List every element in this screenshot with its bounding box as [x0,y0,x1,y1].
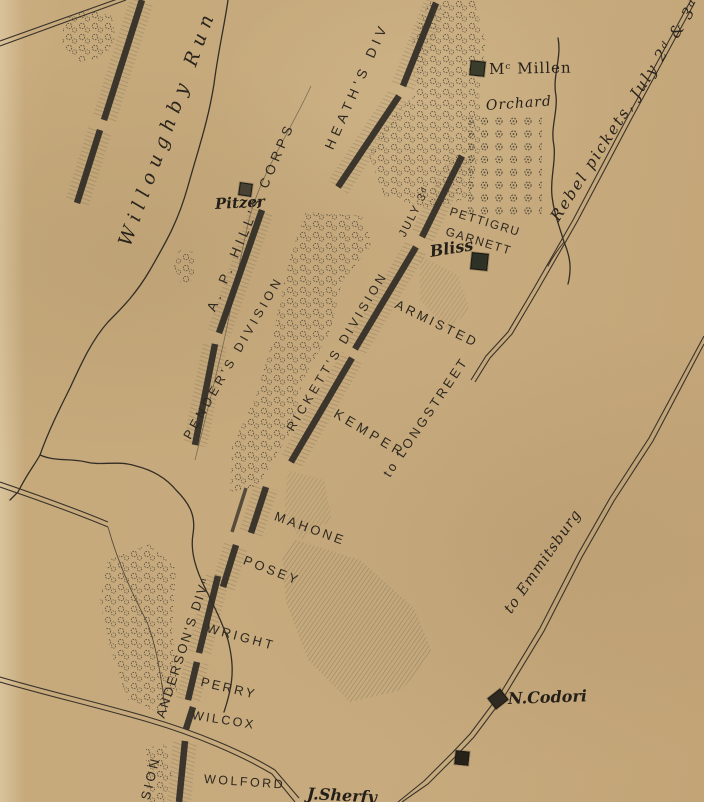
roadside-house-icon [454,750,469,765]
bliss-house-icon [470,252,489,271]
label-pitzer: Pitzer [215,194,266,212]
map-canvas: Willoughby Run A. P. HILL'S CORPS HEATH'… [0,0,704,802]
mcmillen-creek-spur [548,242,564,266]
map-artwork [0,0,704,802]
mcmillen-house-icon [469,60,485,76]
label-n-codori: N.Codori [508,688,587,707]
orchard-grid [468,113,542,216]
woods-top-left [62,10,116,62]
label-mcmillen: Mᶜ Millen [489,61,572,77]
woods-areas [62,0,486,802]
emmitsburg-road [398,336,704,802]
label-j-sherfy: J.Sherfy [307,786,378,802]
woods-small-pender [174,250,196,286]
